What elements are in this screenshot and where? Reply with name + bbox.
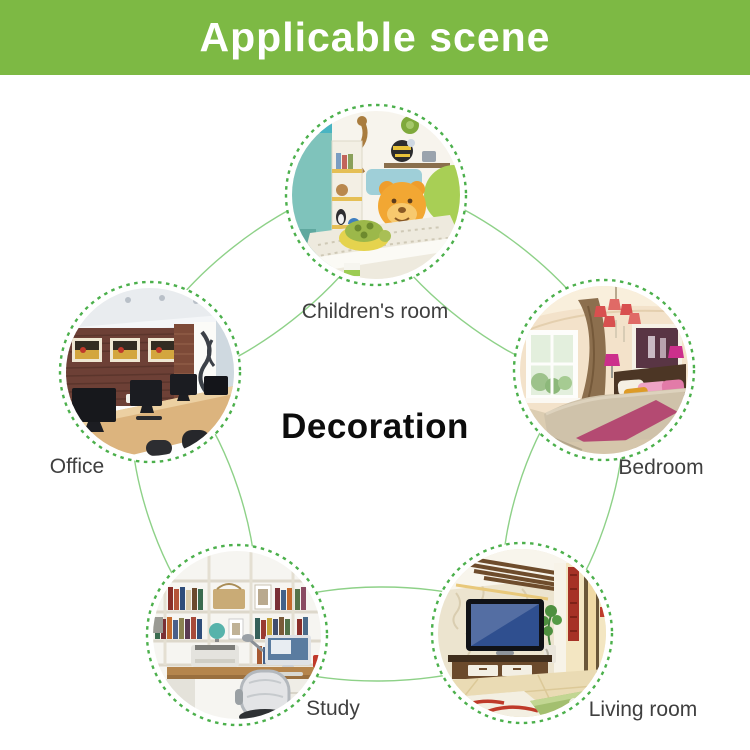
children-room-photo [286, 105, 484, 285]
label-office: Office [50, 455, 104, 479]
label-bedroom: Bedroom [618, 456, 703, 480]
page-title: Applicable scene [200, 14, 551, 61]
study-photo [147, 545, 327, 725]
page: { "header": { "title": "Applicable scene… [0, 0, 750, 750]
header-banner: Applicable scene [0, 0, 750, 75]
label-children-room: Children's room [302, 300, 448, 324]
decoration-scene-diagram: Children's room Office Bedroom Study Liv… [0, 75, 750, 750]
bedroom-photo [514, 280, 694, 460]
label-living-room: Living room [589, 698, 698, 722]
center-title: Decoration [281, 407, 469, 447]
living-room-photo [432, 543, 612, 723]
office-photo [60, 282, 240, 462]
label-study: Study [306, 697, 360, 721]
